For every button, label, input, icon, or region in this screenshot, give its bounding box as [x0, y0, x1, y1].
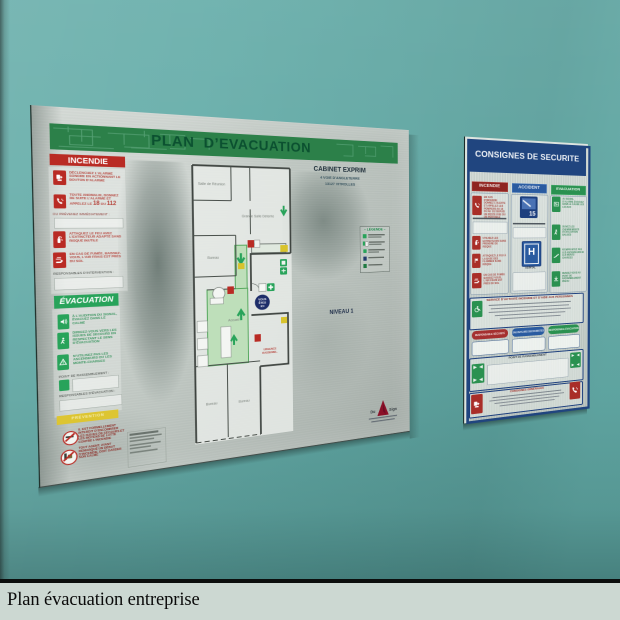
- svg-text:Sign: Sign: [389, 407, 397, 412]
- svg-text:Du: Du: [370, 410, 375, 415]
- svg-text:Salle de Réunion: Salle de Réunion: [198, 181, 226, 186]
- svg-text:ÊTES: ÊTES: [259, 300, 267, 304]
- svg-text:Bureau: Bureau: [207, 255, 219, 259]
- svg-text:Grande Salle Détente: Grande Salle Détente: [242, 214, 275, 218]
- svg-text:ICI: ICI: [261, 305, 265, 308]
- svg-text:Accueil: Accueil: [228, 318, 239, 323]
